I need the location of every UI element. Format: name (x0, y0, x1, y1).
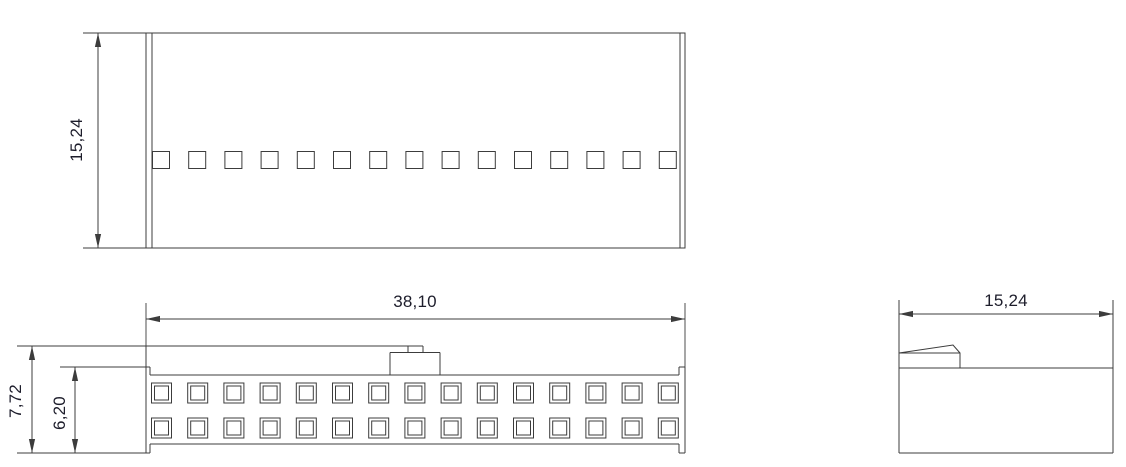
pin-hole-inner (480, 386, 494, 400)
pin-slot (515, 152, 532, 169)
extension-lines (146, 303, 685, 367)
pin-slot (623, 152, 640, 169)
pin-hole-inner (336, 421, 350, 435)
pin-slot (659, 152, 676, 169)
pin-hole-inner (155, 386, 169, 400)
side-view: 15,24 (899, 291, 1113, 453)
pin-slot (189, 152, 206, 169)
pin-slot (551, 152, 568, 169)
pin-hole-inner (625, 421, 639, 435)
pin-hole-inner (227, 386, 241, 400)
pin-hole-inner (191, 421, 205, 435)
pin-slot (406, 152, 423, 169)
pin-slot (442, 152, 459, 169)
dimension-label-width: 38,10 (393, 292, 437, 311)
side-depth-dimension: 15,24 (899, 291, 1113, 314)
pin-hole-inner (408, 421, 422, 435)
pin-hole-inner (299, 386, 313, 400)
front-pin-holes (152, 383, 679, 438)
pin-hole-inner (263, 386, 277, 400)
pin-hole-inner (661, 386, 675, 400)
dimension-label-body-height: 6,20 (50, 396, 69, 430)
pin-hole-inner (589, 386, 603, 400)
top-view-outline (146, 33, 685, 248)
pin-hole-inner (299, 421, 313, 435)
pin-hole-inner (444, 386, 458, 400)
pin-slot (478, 152, 495, 169)
pin-hole-inner (517, 421, 531, 435)
connector-drawing: 15,24 38,10 7,72 6,20 (0, 0, 1126, 467)
pin-hole-inner (553, 421, 567, 435)
pin-slot (261, 152, 278, 169)
dimension-label-overall-height: 7,72 (6, 384, 25, 418)
pin-hole-inner (263, 421, 277, 435)
top-view: 15,24 (67, 33, 685, 248)
top-pin-slots (153, 152, 677, 169)
dimension-label-depth: 15,24 (67, 118, 86, 162)
pin-slot (587, 152, 604, 169)
front-overall-height-dimension: 7,72 (6, 346, 146, 453)
pin-slot (370, 152, 387, 169)
extension-lines (83, 33, 146, 248)
extension-lines (17, 346, 146, 453)
side-view-latch-bump (899, 345, 960, 368)
dimension-label-depth: 15,24 (984, 291, 1028, 310)
pin-hole-inner (661, 421, 675, 435)
pin-hole-inner (625, 386, 639, 400)
technical-drawing-canvas: 15,24 38,10 7,72 6,20 (0, 0, 1126, 467)
pin-hole-inner (336, 386, 350, 400)
side-view-outline (899, 300, 1113, 453)
front-view: 38,10 7,72 6,20 (6, 292, 685, 453)
pin-hole-inner (444, 421, 458, 435)
pin-hole-inner (191, 386, 205, 400)
pin-hole-inner (227, 421, 241, 435)
top-height-dimension: 15,24 (67, 33, 146, 248)
front-width-dimension: 38,10 (146, 292, 685, 367)
pin-slot (225, 152, 242, 169)
pin-hole-inner (553, 386, 567, 400)
pin-slot (334, 152, 351, 169)
pin-hole-inner (372, 386, 386, 400)
pin-hole-inner (408, 386, 422, 400)
pin-hole-inner (480, 421, 494, 435)
pin-hole-inner (589, 421, 603, 435)
pin-hole-inner (155, 421, 169, 435)
pin-hole-inner (372, 421, 386, 435)
pin-slot (153, 152, 170, 169)
pin-slot (297, 152, 314, 169)
pin-hole-inner (517, 386, 531, 400)
front-body-height-dimension: 6,20 (50, 367, 146, 453)
